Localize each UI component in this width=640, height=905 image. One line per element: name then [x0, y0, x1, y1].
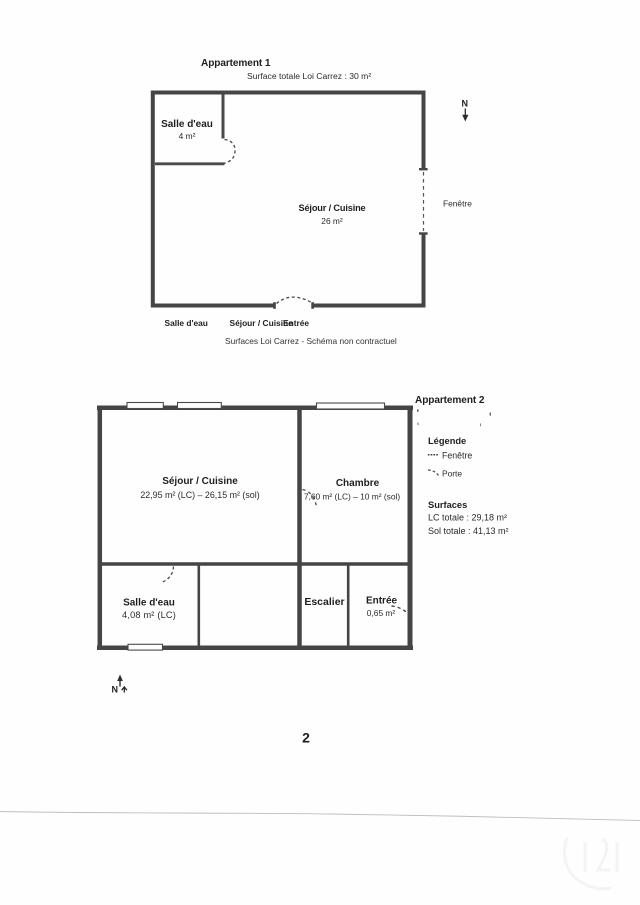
svg-text:Entrée: Entrée [366, 596, 398, 607]
svg-text:Entrée: Entrée [283, 318, 309, 328]
svg-text:4,08 m² (LC): 4,08 m² (LC) [122, 610, 176, 620]
svg-text:Fenêtre: Fenêtre [442, 451, 472, 461]
svg-text:Séjour / Cuisine: Séjour / Cuisine [298, 203, 365, 213]
svg-text:4 m²: 4 m² [179, 131, 196, 141]
svg-text:Porte: Porte [442, 469, 462, 479]
svg-text:Salle d'eau: Salle d'eau [165, 318, 208, 328]
svg-text:0,65 m²: 0,65 m² [367, 608, 396, 618]
svg-text:Surfaces Loi Carrez - Schéma n: Surfaces Loi Carrez - Schéma non contrac… [225, 336, 397, 346]
svg-text:LC totale : 29,18 m²: LC totale : 29,18 m² [428, 513, 507, 523]
svg-text:Salle d'eau: Salle d'eau [123, 598, 175, 609]
svg-text:Escalier: Escalier [304, 596, 344, 608]
svg-text:Séjour / Cuisine: Séjour / Cuisine [162, 476, 238, 487]
svg-text:Légende: Légende [428, 436, 466, 446]
svg-text:Chambre: Chambre [336, 478, 380, 489]
svg-text:26 m²: 26 m² [321, 216, 343, 226]
svg-text:Sol totale : 41,13 m²: Sol totale : 41,13 m² [428, 526, 509, 536]
svg-text:22,95 m² (LC) – 26,15 m² (sol): 22,95 m² (LC) – 26,15 m² (sol) [140, 490, 259, 500]
svg-text:Appartement 1: Appartement 1 [201, 58, 271, 69]
svg-text:N: N [462, 99, 469, 109]
svg-text:2: 2 [302, 730, 310, 746]
svg-text:Fenêtre: Fenêtre [443, 199, 472, 209]
svg-text:Surfaces: Surfaces [428, 500, 467, 510]
svg-text:N: N [112, 685, 119, 695]
svg-text:Surface totale Loi Carrez : 30: Surface totale Loi Carrez : 30 m² [247, 71, 371, 81]
svg-text:Salle d'eau: Salle d'eau [161, 119, 213, 130]
svg-text:Appartement 2: Appartement 2 [415, 395, 485, 406]
svg-text:7,60 m² (LC) – 10 m² (sol): 7,60 m² (LC) – 10 m² (sol) [304, 492, 401, 502]
